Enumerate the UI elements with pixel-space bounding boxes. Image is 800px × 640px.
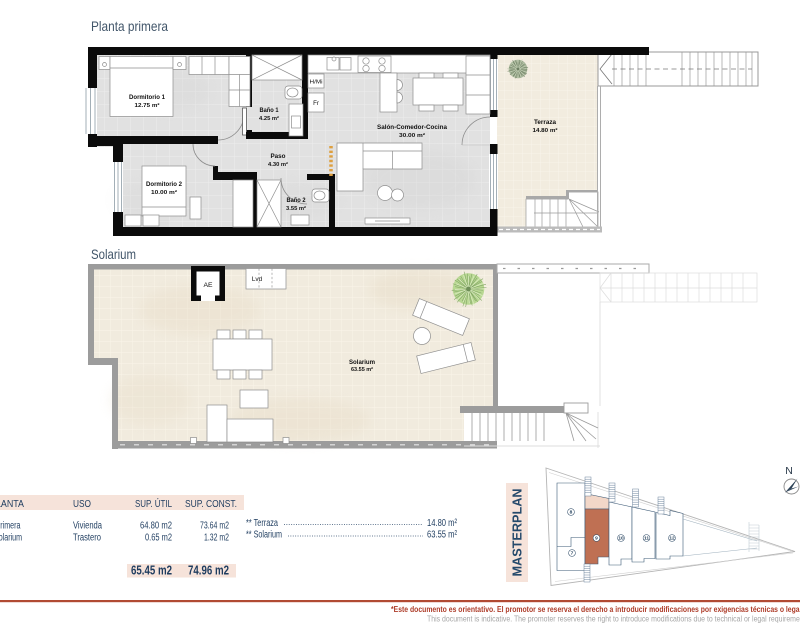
- svg-text:*Este documento es orientativo: *Este documento es orientativo. El promo…: [391, 605, 800, 614]
- svg-text:Baño 2: Baño 2: [287, 197, 306, 204]
- svg-text:9: 9: [595, 536, 598, 542]
- svg-text:14.80 m²: 14.80 m²: [533, 127, 558, 134]
- svg-text:8: 8: [570, 510, 573, 516]
- svg-text:Lvd: Lvd: [252, 276, 263, 283]
- svg-text:63.55 m²: 63.55 m²: [427, 530, 458, 541]
- svg-text:Terraza: Terraza: [534, 119, 556, 126]
- svg-text:3.55 m²: 3.55 m²: [286, 205, 306, 212]
- svg-text:65.45 m2: 65.45 m2: [131, 563, 172, 578]
- svg-text:73.64 m2: 73.64 m2: [200, 521, 229, 532]
- svg-text:USO: USO: [73, 499, 91, 510]
- svg-text:0.65 m2: 0.65 m2: [145, 533, 172, 544]
- svg-text:PLANTA: PLANTA: [0, 499, 24, 510]
- svg-text:SUP. CONST.: SUP. CONST.: [185, 499, 237, 510]
- svg-text:This document is indicative. T: This document is indicative. The promote…: [427, 615, 800, 624]
- svg-text:64.80 m2: 64.80 m2: [140, 521, 172, 532]
- svg-text:** Terraza: ** Terraza: [246, 518, 278, 529]
- svg-text:Dormitorio 2: Dormitorio 2: [146, 181, 182, 188]
- svg-text:63.55 m²: 63.55 m²: [351, 366, 373, 373]
- svg-text:Planta primera: Planta primera: [91, 18, 168, 34]
- svg-text:4.25 m²: 4.25 m²: [259, 115, 279, 122]
- svg-text:** Solarium: ** Solarium: [246, 530, 282, 541]
- svg-text:Salón-Comedor-Cocina: Salón-Comedor-Cocina: [377, 124, 447, 131]
- svg-text:Trastero: Trastero: [73, 533, 101, 544]
- svg-text:12: 12: [669, 536, 675, 542]
- svg-text:H/Mi: H/Mi: [310, 80, 323, 86]
- svg-text:Solarium: Solarium: [349, 359, 375, 366]
- svg-text:Solarium: Solarium: [0, 533, 22, 544]
- svg-text:Paso: Paso: [271, 153, 286, 160]
- svg-text:1.32 m2: 1.32 m2: [204, 533, 229, 544]
- svg-text:14.80 m²: 14.80 m²: [427, 518, 458, 529]
- svg-text:30.00 m²: 30.00 m²: [399, 132, 425, 139]
- svg-text:Vivienda: Vivienda: [73, 521, 102, 532]
- svg-text:Solarium: Solarium: [91, 246, 136, 262]
- svg-text:Primera: Primera: [0, 521, 21, 532]
- svg-text:Baño 1: Baño 1: [260, 107, 279, 114]
- svg-text:4.30 m²: 4.30 m²: [268, 161, 288, 168]
- svg-text:N: N: [785, 465, 793, 477]
- svg-text:AE: AE: [203, 282, 213, 289]
- svg-text:10: 10: [618, 536, 624, 542]
- svg-text:7: 7: [571, 551, 574, 557]
- svg-text:11: 11: [644, 536, 649, 542]
- svg-text:Dormitorio 1: Dormitorio 1: [129, 94, 165, 101]
- svg-text:SUP. ÚTIL: SUP. ÚTIL: [135, 497, 172, 510]
- svg-text:10.00 m²: 10.00 m²: [151, 189, 177, 196]
- svg-text:MASTERPLAN: MASTERPLAN: [511, 489, 525, 577]
- svg-text:Fr: Fr: [313, 100, 319, 107]
- svg-text:74.96 m2: 74.96 m2: [188, 563, 229, 578]
- svg-text:12.75 m²: 12.75 m²: [135, 102, 160, 109]
